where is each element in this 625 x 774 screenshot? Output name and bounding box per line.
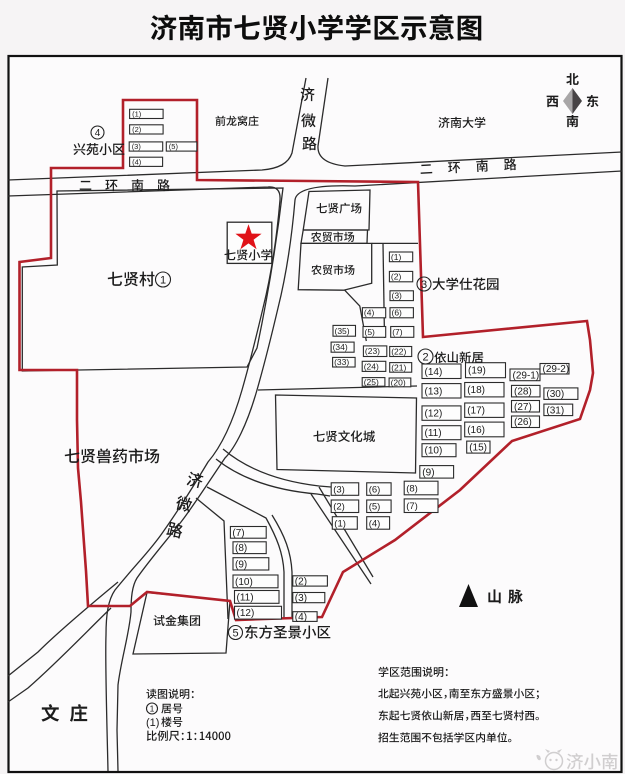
svg-text:(9): (9): [422, 467, 434, 478]
svg-text:(1): (1): [391, 252, 402, 262]
svg-text:(3): (3): [392, 291, 403, 301]
svg-text:(18): (18): [467, 385, 485, 396]
svg-text:(8): (8): [235, 543, 247, 554]
svg-text:2: 2: [422, 352, 428, 364]
svg-text:(2): (2): [295, 576, 307, 587]
svg-text:(4): (4): [132, 157, 142, 166]
svg-text:(35): (35): [335, 326, 350, 336]
svg-text:(26): (26): [514, 417, 532, 428]
svg-text:(19): (19): [468, 366, 486, 377]
svg-text:(22): (22): [391, 347, 406, 357]
svg-text:(4): (4): [295, 612, 307, 623]
svg-text:(25): (25): [364, 377, 379, 387]
svg-text:(3): (3): [132, 142, 142, 151]
svg-text:(7): (7): [392, 327, 403, 337]
svg-text:3: 3: [421, 279, 427, 291]
svg-text:(28): (28): [514, 387, 532, 398]
svg-text:(11): (11): [237, 592, 254, 603]
svg-text:(3): (3): [333, 484, 345, 495]
svg-text:(27): (27): [514, 402, 532, 413]
svg-text:(2): (2): [132, 125, 142, 134]
svg-text:(1): (1): [334, 518, 346, 529]
svg-text:(7): (7): [406, 501, 418, 512]
svg-text:(2): (2): [333, 502, 345, 513]
svg-text:(14): (14): [425, 367, 443, 378]
svg-text:(3): (3): [295, 593, 307, 604]
svg-text:(15): (15): [469, 443, 487, 454]
svg-text:(12): (12): [425, 409, 443, 420]
svg-text:1: 1: [150, 704, 155, 714]
svg-text:(11): (11): [425, 428, 442, 439]
svg-text:(5): (5): [369, 502, 381, 513]
svg-text:4: 4: [95, 128, 101, 139]
svg-text:(5): (5): [365, 327, 376, 337]
svg-text:(5): (5): [169, 142, 179, 151]
svg-text:(21): (21): [391, 362, 406, 372]
svg-text:(16): (16): [467, 425, 485, 436]
svg-text:(29-2): (29-2): [543, 364, 570, 375]
svg-text:(2): (2): [391, 272, 402, 282]
svg-text:(1): (1): [146, 717, 159, 729]
svg-text:5: 5: [232, 628, 238, 640]
svg-text:(33): (33): [334, 357, 349, 367]
svg-text:(6): (6): [392, 308, 403, 318]
svg-text:(10): (10): [425, 446, 443, 457]
svg-text:(24): (24): [364, 361, 379, 371]
svg-text:(34): (34): [333, 342, 348, 352]
svg-text:(30): (30): [546, 389, 564, 400]
svg-text:(7): (7): [232, 528, 244, 539]
svg-text:(29-1): (29-1): [513, 370, 540, 381]
svg-text:(6): (6): [369, 484, 381, 495]
svg-text:(12): (12): [237, 608, 255, 619]
svg-text:(23): (23): [365, 346, 380, 356]
svg-text:(1): (1): [132, 110, 142, 119]
svg-text:(31): (31): [546, 405, 564, 416]
svg-text:(17): (17): [467, 406, 485, 417]
svg-text:(9): (9): [235, 559, 247, 570]
svg-text:(4): (4): [364, 308, 375, 318]
svg-text:(13): (13): [425, 386, 443, 397]
svg-text:(10): (10): [235, 577, 253, 588]
svg-text:1: 1: [160, 275, 166, 287]
svg-text:(8): (8): [406, 483, 418, 494]
svg-text:(20): (20): [391, 377, 406, 387]
svg-text:(4): (4): [369, 518, 381, 529]
